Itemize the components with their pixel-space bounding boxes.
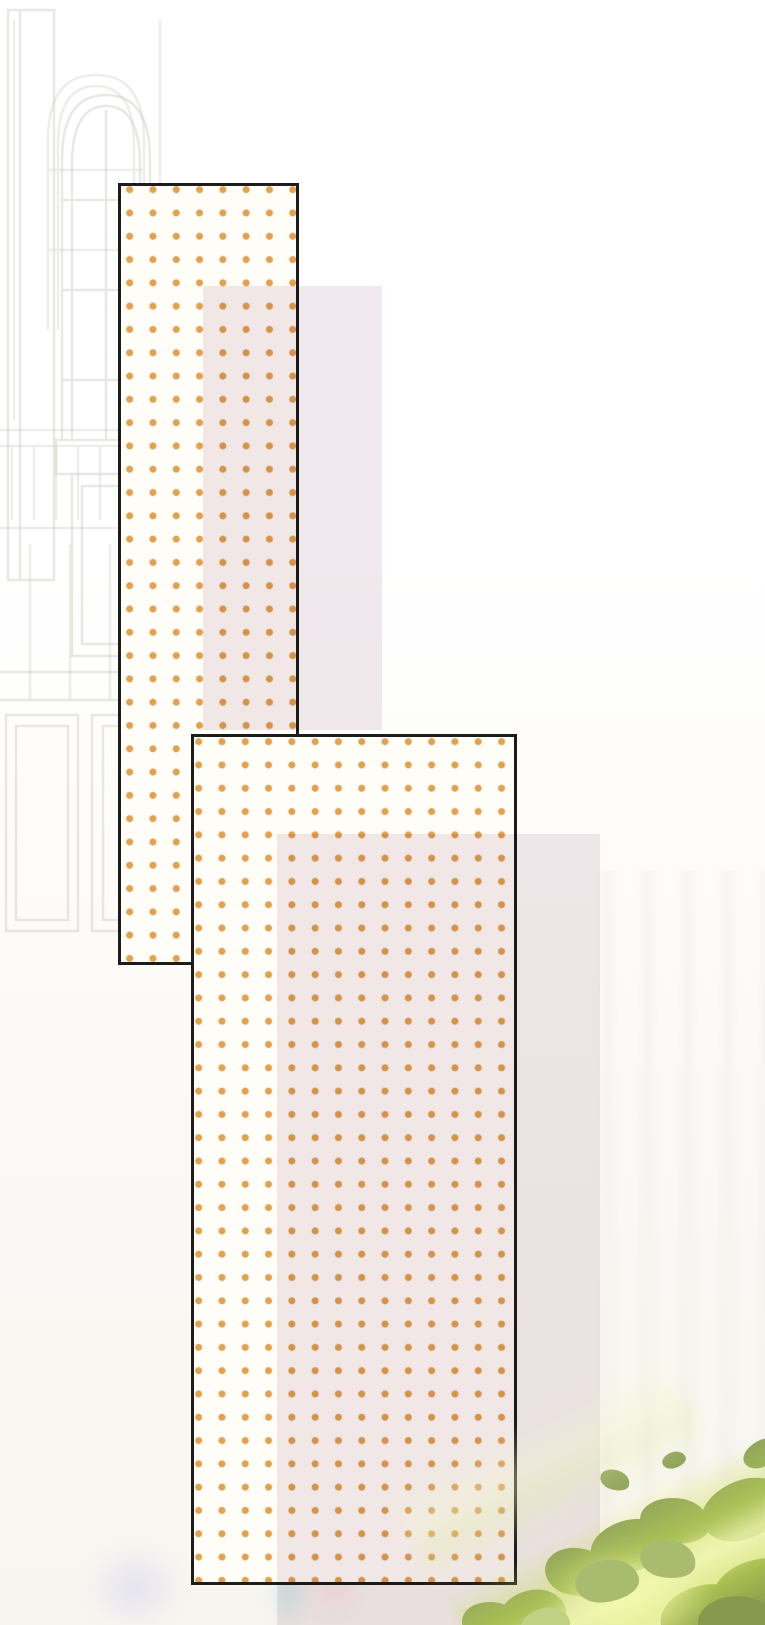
mauve-overlay-2 [277,834,600,1625]
haze-lavender [85,1545,185,1625]
mauve-overlay-1 [203,286,382,730]
comic-page [0,0,765,1625]
